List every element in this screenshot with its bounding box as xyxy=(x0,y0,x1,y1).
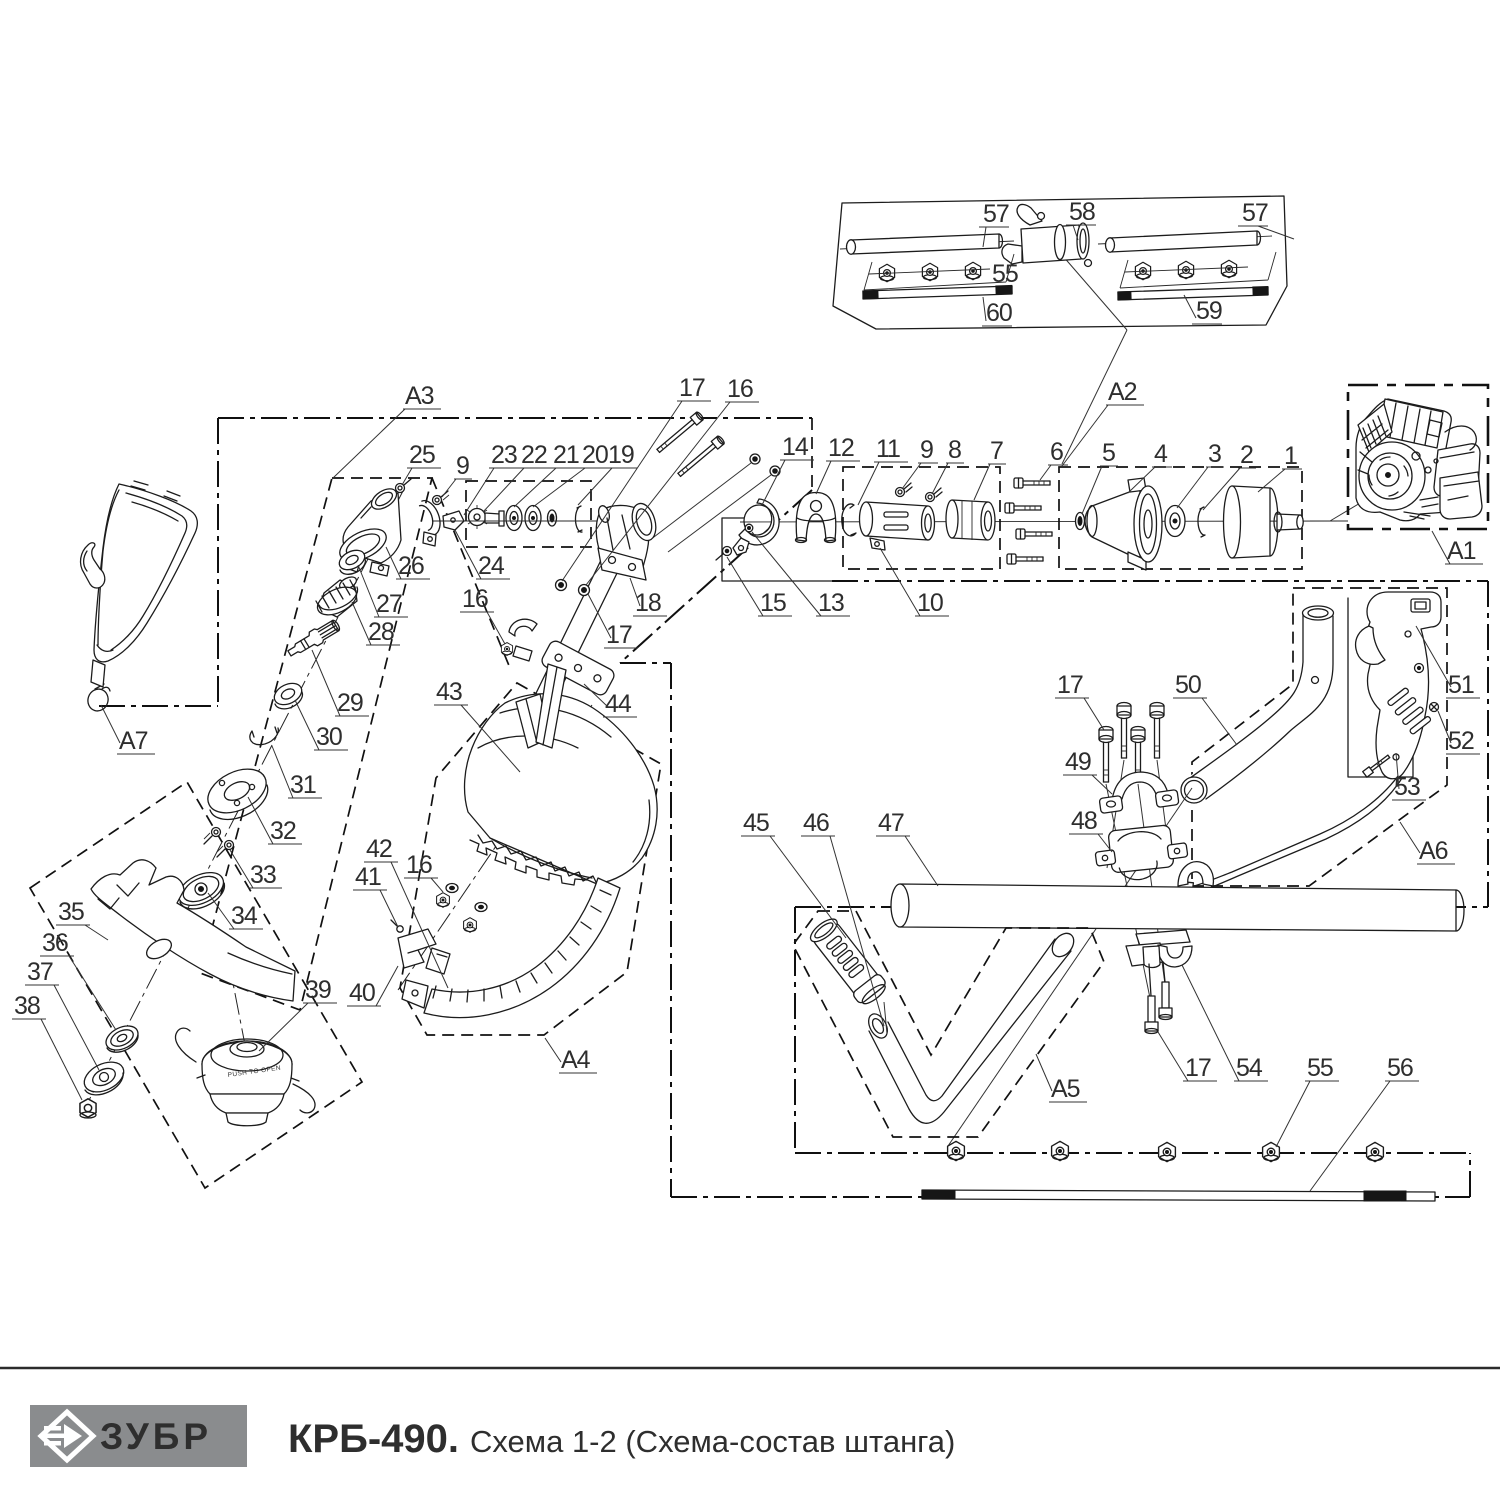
svg-text:16: 16 xyxy=(727,375,753,403)
svg-text:23: 23 xyxy=(491,441,517,469)
svg-text:17: 17 xyxy=(1185,1054,1211,1082)
svg-text:55: 55 xyxy=(1307,1054,1333,1082)
svg-text:43: 43 xyxy=(436,678,462,706)
svg-text:27: 27 xyxy=(376,590,402,618)
svg-text:3: 3 xyxy=(1208,440,1221,468)
svg-text:34: 34 xyxy=(231,902,258,930)
svg-text:57: 57 xyxy=(1242,199,1268,227)
svg-text:4: 4 xyxy=(1154,440,1168,468)
svg-text:60: 60 xyxy=(986,299,1012,327)
svg-text:16: 16 xyxy=(462,585,488,613)
svg-text:36: 36 xyxy=(42,929,68,957)
svg-text:57: 57 xyxy=(983,200,1009,228)
svg-text:9: 9 xyxy=(920,436,933,464)
svg-text:49: 49 xyxy=(1065,748,1091,776)
svg-text:КРБ-490.: КРБ-490. xyxy=(288,1417,459,1461)
svg-text:47: 47 xyxy=(878,809,904,837)
svg-text:7: 7 xyxy=(990,437,1003,465)
svg-text:38: 38 xyxy=(14,992,40,1020)
svg-text:A6: A6 xyxy=(1419,837,1448,865)
svg-text:A1: A1 xyxy=(1447,537,1476,565)
svg-text:A4: A4 xyxy=(561,1046,591,1074)
svg-text:58: 58 xyxy=(1069,198,1095,226)
svg-text:21: 21 xyxy=(553,441,579,469)
svg-text:14: 14 xyxy=(782,433,809,461)
svg-text:37: 37 xyxy=(27,958,53,986)
svg-text:42: 42 xyxy=(366,835,392,863)
svg-text:59: 59 xyxy=(1196,297,1222,325)
svg-text:51: 51 xyxy=(1448,671,1474,699)
svg-text:40: 40 xyxy=(349,979,375,1007)
svg-text:9: 9 xyxy=(456,452,469,480)
svg-text:10: 10 xyxy=(917,589,943,617)
svg-text:6: 6 xyxy=(1050,438,1063,466)
svg-text:55: 55 xyxy=(992,260,1018,288)
svg-text:32: 32 xyxy=(270,817,296,845)
svg-text:Схема 1-2 (Схема-состав штанга: Схема 1-2 (Схема-состав штанга) xyxy=(470,1424,955,1459)
svg-text:8: 8 xyxy=(948,436,961,464)
svg-text:17: 17 xyxy=(1057,671,1083,699)
svg-text:12: 12 xyxy=(828,434,854,462)
svg-text:54: 54 xyxy=(1236,1054,1263,1082)
svg-text:56: 56 xyxy=(1387,1054,1413,1082)
svg-text:48: 48 xyxy=(1071,807,1097,835)
svg-text:44: 44 xyxy=(605,690,632,718)
svg-text:25: 25 xyxy=(409,441,435,469)
svg-text:ЗУБР: ЗУБР xyxy=(100,1416,212,1457)
svg-text:A5: A5 xyxy=(1051,1075,1080,1103)
svg-text:28: 28 xyxy=(368,618,394,646)
svg-text:52: 52 xyxy=(1448,727,1474,755)
svg-text:15: 15 xyxy=(760,589,786,617)
svg-text:A2: A2 xyxy=(1108,378,1137,406)
svg-text:35: 35 xyxy=(58,898,84,926)
svg-text:26: 26 xyxy=(398,552,424,580)
svg-text:33: 33 xyxy=(250,861,276,889)
svg-text:46: 46 xyxy=(803,809,829,837)
svg-text:22: 22 xyxy=(521,441,547,469)
svg-text:31: 31 xyxy=(290,771,316,799)
svg-text:19: 19 xyxy=(608,441,634,469)
svg-text:A3: A3 xyxy=(405,382,434,410)
svg-text:50: 50 xyxy=(1175,671,1201,699)
svg-text:20: 20 xyxy=(582,441,608,469)
svg-text:16: 16 xyxy=(406,851,432,879)
svg-text:39: 39 xyxy=(305,976,331,1004)
svg-text:17: 17 xyxy=(679,374,705,402)
svg-text:41: 41 xyxy=(355,863,381,891)
svg-text:29: 29 xyxy=(337,689,363,717)
svg-text:2: 2 xyxy=(1240,441,1253,469)
svg-text:13: 13 xyxy=(818,589,844,617)
svg-text:45: 45 xyxy=(743,809,769,837)
svg-text:11: 11 xyxy=(876,435,900,463)
svg-text:A7: A7 xyxy=(119,727,148,755)
svg-text:1: 1 xyxy=(1284,442,1297,470)
svg-text:24: 24 xyxy=(478,552,505,580)
svg-text:5: 5 xyxy=(1102,439,1115,467)
svg-text:30: 30 xyxy=(316,723,342,751)
